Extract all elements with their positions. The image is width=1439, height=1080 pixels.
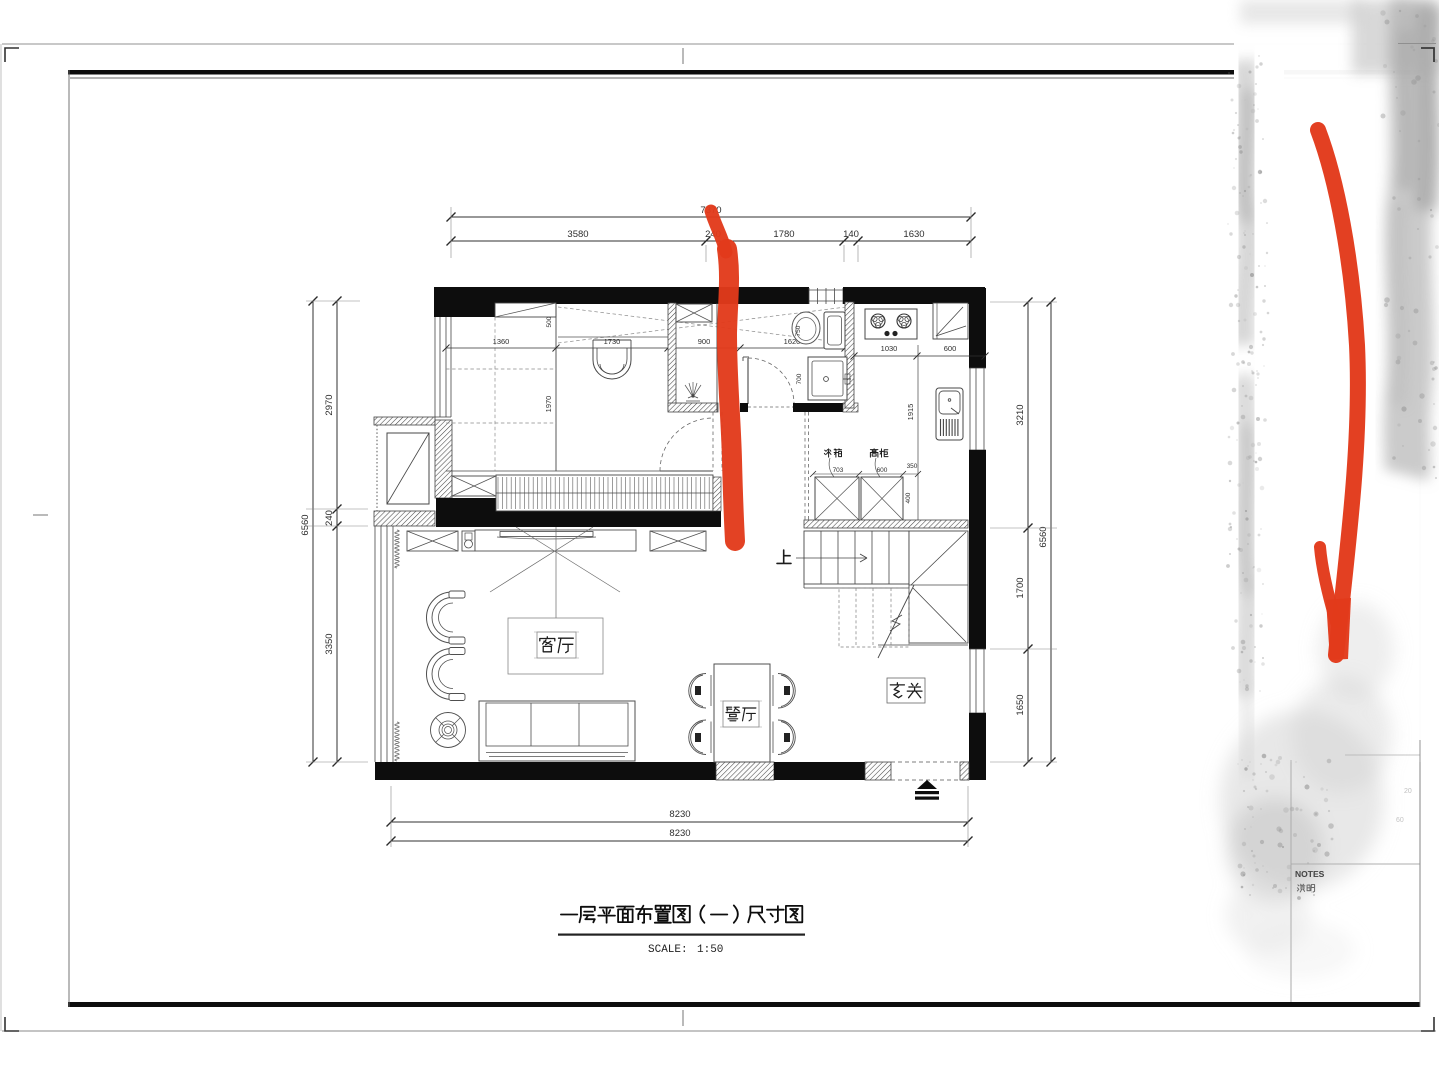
svg-text:1:50: 1:50 xyxy=(697,944,723,956)
svg-text:1915: 1915 xyxy=(906,404,915,421)
svg-text:600: 600 xyxy=(877,467,888,474)
svg-text:1630: 1630 xyxy=(903,229,924,240)
svg-text:900: 900 xyxy=(698,337,711,346)
svg-text:6560: 6560 xyxy=(300,514,311,535)
svg-text:350: 350 xyxy=(907,463,918,470)
svg-text:3210: 3210 xyxy=(1015,404,1026,425)
svg-text:1360: 1360 xyxy=(493,337,510,346)
svg-text:140: 140 xyxy=(843,229,859,240)
svg-text:60: 60 xyxy=(1396,817,1404,824)
svg-text:1030: 1030 xyxy=(881,344,898,353)
svg-text:600: 600 xyxy=(944,344,957,353)
svg-text:3580: 3580 xyxy=(567,229,588,240)
svg-text:SCALE:: SCALE: xyxy=(648,944,688,956)
svg-text:2970: 2970 xyxy=(324,394,335,415)
svg-text:750: 750 xyxy=(795,325,802,336)
svg-text:1650: 1650 xyxy=(1015,694,1026,715)
svg-text:8230: 8230 xyxy=(669,828,690,839)
svg-text:3350: 3350 xyxy=(324,633,335,654)
svg-text:1730: 1730 xyxy=(604,337,621,346)
svg-text:400: 400 xyxy=(905,492,912,503)
svg-text:1970: 1970 xyxy=(544,396,553,413)
svg-text:8230: 8230 xyxy=(669,809,690,820)
svg-text:703: 703 xyxy=(833,467,844,474)
svg-text:6560: 6560 xyxy=(1038,526,1049,547)
svg-text:700: 700 xyxy=(796,373,803,384)
svg-text:NOTES: NOTES xyxy=(1295,869,1325,879)
svg-text:1780: 1780 xyxy=(773,229,794,240)
svg-text:1700: 1700 xyxy=(1015,577,1026,598)
svg-text:500: 500 xyxy=(546,316,553,327)
svg-text:20: 20 xyxy=(1404,788,1412,795)
svg-text:240: 240 xyxy=(324,510,335,526)
